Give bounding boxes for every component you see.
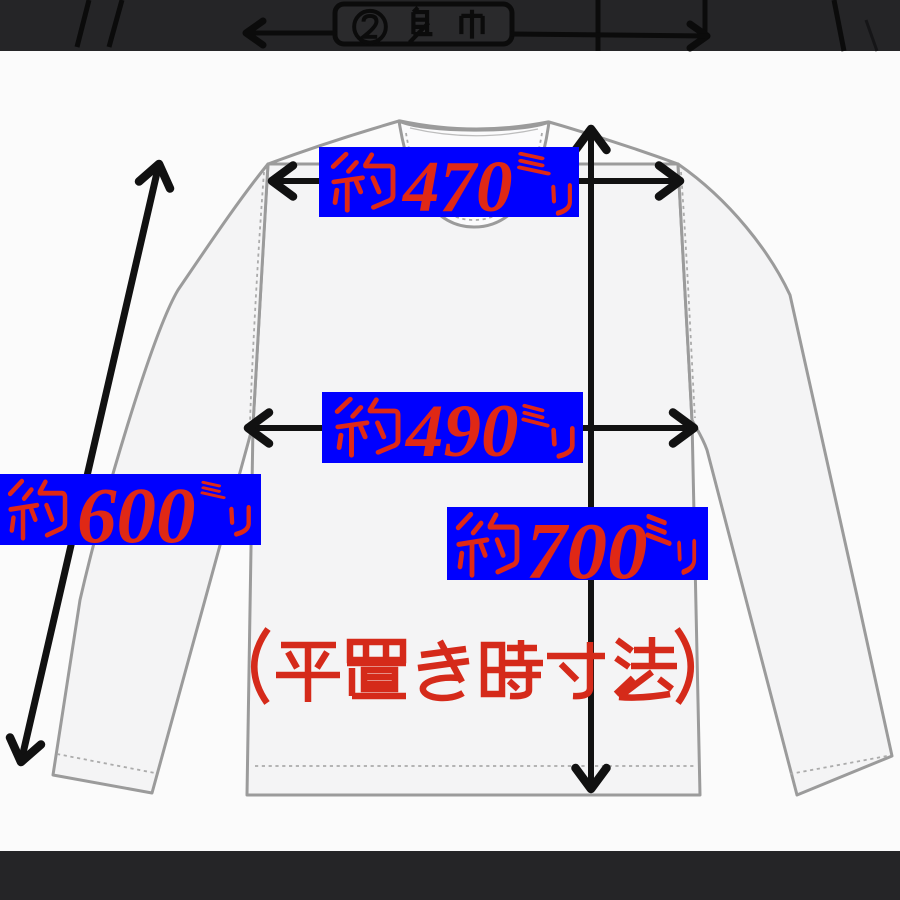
- svg-text:490: 490: [404, 390, 519, 473]
- svg-text:700: 700: [526, 506, 648, 596]
- svg-text:600: 600: [77, 473, 196, 560]
- svg-text:470: 470: [401, 146, 513, 227]
